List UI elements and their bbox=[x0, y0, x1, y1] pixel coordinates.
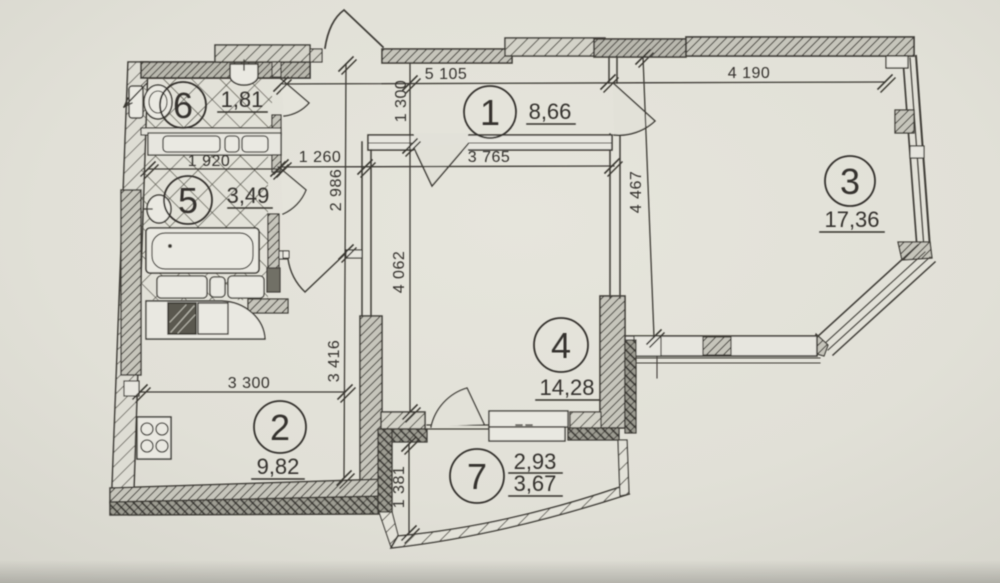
svg-text:6: 6 bbox=[173, 85, 193, 126]
svg-text:17,36: 17,36 bbox=[824, 207, 879, 232]
svg-text:8,66: 8,66 bbox=[529, 99, 572, 124]
svg-text:14,28: 14,28 bbox=[539, 375, 594, 400]
svg-text:7: 7 bbox=[467, 456, 487, 497]
svg-text:2: 2 bbox=[270, 407, 290, 448]
svg-text:3 300: 3 300 bbox=[228, 375, 271, 392]
svg-text:1,81: 1,81 bbox=[221, 87, 264, 112]
svg-text:3 765: 3 765 bbox=[468, 149, 511, 166]
svg-text:4 467: 4 467 bbox=[628, 171, 645, 214]
svg-text:4: 4 bbox=[551, 325, 571, 366]
svg-text:3,67: 3,67 bbox=[514, 471, 557, 496]
svg-text:1 260: 1 260 bbox=[299, 149, 342, 166]
svg-text:2 986: 2 986 bbox=[328, 169, 345, 212]
svg-text:1 920: 1 920 bbox=[188, 153, 231, 170]
svg-text:4 062: 4 062 bbox=[391, 251, 408, 294]
svg-text:3 416: 3 416 bbox=[326, 340, 343, 383]
svg-text:1: 1 bbox=[480, 92, 500, 133]
svg-text:4 190: 4 190 bbox=[728, 65, 771, 82]
svg-text:3,49: 3,49 bbox=[227, 183, 270, 208]
svg-text:5 105: 5 105 bbox=[425, 66, 468, 83]
svg-text:9,82: 9,82 bbox=[257, 454, 300, 479]
svg-text:3: 3 bbox=[840, 161, 860, 202]
svg-text:1 300: 1 300 bbox=[393, 80, 410, 123]
svg-text:5: 5 bbox=[178, 180, 198, 221]
svg-text:1 381: 1 381 bbox=[391, 466, 408, 509]
